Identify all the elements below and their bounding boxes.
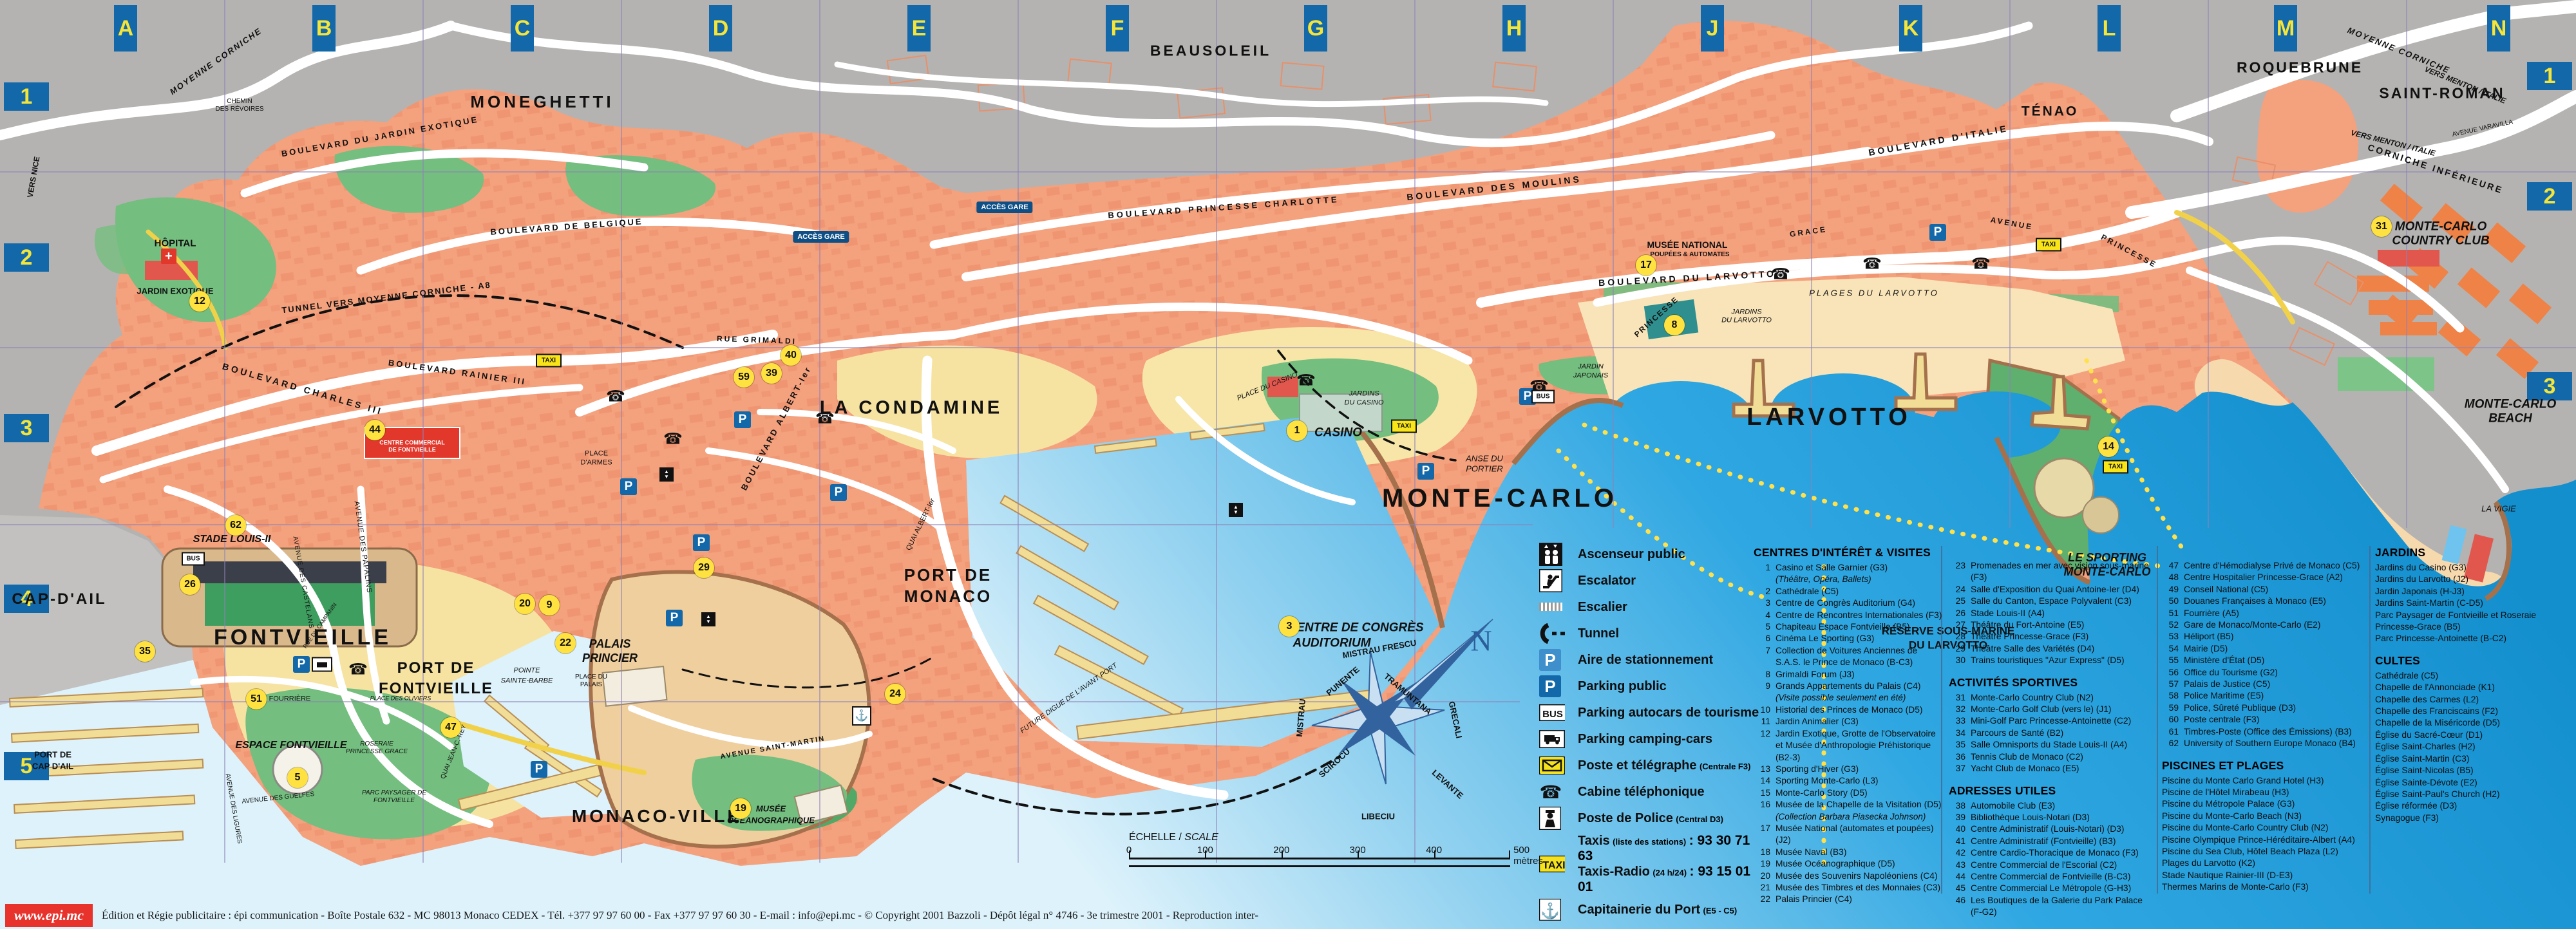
map-label: CHEMIN [227, 99, 252, 105]
poi-marker-1: 1 [1287, 420, 1307, 441]
compass-north-label: N [1470, 624, 1492, 658]
map-label: PRINCIER [582, 652, 638, 664]
grid-column-L: L [2098, 5, 2121, 52]
grid-column-M: M [2274, 5, 2297, 52]
poi-list-item: 30Trains touristiques "Azur Express" (D5… [1949, 655, 2152, 666]
poi-column-3: 47Centre d'Hémodialyse Privé de Monaco (… [2162, 546, 2360, 903]
poi-marker-5: 5 [287, 767, 308, 788]
legend-item: PAire de stationnement [1539, 648, 1766, 671]
map-label: PORT DE [34, 751, 71, 759]
poi-list-item: 40Centre Administratif (Louis-Notari) (D… [1949, 823, 2152, 835]
map-label: DES RÉVOIRES [215, 106, 263, 113]
grid-column-F: F [1106, 5, 1129, 52]
map-label: JAPONAIS [1573, 373, 1608, 380]
footer: www.epi.mc Édition et Régie publicitaire… [0, 901, 2576, 929]
poi-list-item: Chapelle des Carmes (L2) [2375, 694, 2568, 706]
grid-column-C: C [511, 5, 534, 52]
P-badge: P [531, 761, 547, 778]
legend-label: Escalier [1578, 599, 1627, 615]
poi-column-1: CENTRES D'INTÉRÊT & VISITES1Casino et Sa… [1754, 546, 1944, 915]
poi-list-item: 53Héliport (B5) [2162, 631, 2360, 643]
poi-list-item: 32Monte-Carlo Golf Club (vers le) (J1) [1949, 704, 2152, 715]
poi-list-item: 27Théâtre du Fort-Antoine (E5) [1949, 619, 2152, 631]
map-label: PORT DE [397, 661, 475, 676]
legend-label: Ascenseur public [1578, 547, 1685, 562]
poi-list-item: 6Cinéma Le Sporting (G3) [1754, 633, 1944, 644]
P-badge: P [666, 610, 683, 626]
poi-list-item: Cathédrale (C5) [2375, 670, 2568, 682]
map-label: SAINTE-BARBE [501, 678, 553, 685]
poi-marker-35: 35 [135, 641, 155, 662]
legend-label: Poste et télégraphe (Centrale F3) [1578, 758, 1750, 773]
poi-list-item: 49Conseil National (C5) [2162, 584, 2360, 596]
poi-list-subnote: (Visite possible seulement en été) [1776, 692, 1944, 704]
poi-marker-40: 40 [781, 345, 801, 366]
BUS-badge: BUS [182, 552, 205, 566]
camper-badge [312, 657, 332, 672]
map-label: MONTE-CARLO [2395, 221, 2486, 233]
poi-list-item: Chapelle de la Miséricorde (D5) [2375, 717, 2568, 729]
poi-marker-8: 8 [1664, 315, 1685, 335]
poi-list-item: 19Musée Océanographique (D5) [1754, 858, 1944, 870]
legend-item: Tunnel [1539, 622, 1766, 645]
phone-badge: ☎ [663, 430, 683, 449]
gare-badge: ACCÈS GARE [976, 202, 1032, 213]
poi-marker-3: 3 [1279, 616, 1300, 637]
map-label: LARVOTTO [1747, 405, 1911, 429]
gare-badge: ACCÈS GARE [793, 231, 849, 243]
poi-list-item: Église réformée (D3) [2375, 800, 2568, 812]
phone-badge: ☎ [815, 409, 835, 428]
P-badge: P [293, 656, 310, 673]
poi-list-item: 56Office du Tourisme (G2) [2162, 667, 2360, 679]
poi-list-item: 29Théâtre Salle des Variétés (D4) [1949, 643, 2152, 655]
poi-list-item: 50Douanes Françaises à Monaco (E5) [2162, 596, 2360, 607]
map-label: DE FONTVIEILLE [388, 447, 436, 453]
poi-list-item: Piscine du Métropole Palace (G3) [2162, 798, 2360, 810]
bus-icon: BUS [1539, 701, 1565, 724]
grid-column-G: G [1304, 5, 1327, 52]
anchor-badge: ⚓ [852, 706, 871, 726]
stairs-icon [1539, 596, 1565, 619]
section-header: CENTRES D'INTÉRÊT & VISITES [1754, 546, 1944, 559]
poi-list-item: 39Bibliothèque Louis-Notari (D3) [1949, 812, 2152, 823]
poi-list-item: Église Sainte-Dévote (E2) [2375, 777, 2568, 789]
lift-badge: ▲▼ [1229, 503, 1243, 517]
map-label: CENTRE COMMERCIAL [379, 440, 445, 446]
legend-item: Ascenseur public [1539, 543, 1766, 566]
poi-list-item: 55Ministère d'État (D5) [2162, 655, 2360, 666]
legend-item: PParking public [1539, 675, 1766, 698]
poi-list-item: Église Saint-Martin (C3) [2375, 753, 2568, 765]
phone-badge: ☎ [1862, 255, 1882, 274]
poi-list-item: Stade Nautique Rainier-III (D-E3) [2162, 870, 2360, 881]
map-label: BEAUSOLEIL [1150, 44, 1271, 59]
scale-tick-labels: 0100200300400500 mètres [1129, 845, 1515, 858]
legend-item: TAXITaxis (liste des stations) : 93 30 7… [1539, 833, 1766, 895]
poi-list-item: 16Musée de la Chapelle de la Visitation … [1754, 799, 1944, 811]
poi-list-item: 48Centre Hospitalier Princesse-Grace (A2… [2162, 572, 2360, 583]
grid-row-left-1: 1 [4, 82, 49, 111]
poi-list-item: 24Salle d'Exposition du Quai Antoine-Ier… [1949, 584, 2152, 596]
legend-item: Poste de Police (Central D3) [1539, 807, 1766, 830]
poi-list-item: Parc Paysager de Fontvieille et Roseraie… [2375, 610, 2568, 633]
map-label: PORTIER [1466, 465, 1503, 473]
legend-label: Aire de stationnement [1578, 652, 1713, 668]
poi-list-item: Église du Sacré-Cœur (D1) [2375, 729, 2568, 741]
poi-list-item: 12Jardin Exotique, Grotte de l'Observato… [1754, 728, 1944, 764]
poi-list-item: Jardins du Casino (G3) [2375, 562, 2568, 574]
map-label: CENTRE DE CONGRÈS [1287, 622, 1423, 634]
escalator-icon [1539, 569, 1565, 592]
poi-list-item: 41Centre Administratif (Fontvieille) (B3… [1949, 836, 2152, 847]
poi-list-item: Piscine du Monte-Carlo Beach (N3) [2162, 811, 2360, 822]
map-label: MONACO [904, 588, 992, 605]
poi-marker-62: 62 [225, 515, 246, 536]
poi-list-item: 54Mairie (D5) [2162, 643, 2360, 655]
svg-text:P: P [1544, 650, 1555, 670]
poi-marker-51: 51 [246, 689, 267, 709]
taxi-icon: TAXI [1539, 852, 1565, 876]
legend-label: Taxis (liste des stations) : 93 30 71 63 [1578, 833, 1766, 864]
svg-text:☎: ☎ [1540, 782, 1562, 802]
phone-icon: ☎ [1539, 780, 1565, 803]
grid-column-H: H [1502, 5, 1526, 52]
poi-list-item: Jardins du Larvotto (J2) [2375, 574, 2568, 585]
map-label: COUNTRY CLUB [2392, 235, 2489, 247]
scale-line [1129, 858, 1510, 867]
poi-marker-14: 14 [2098, 436, 2119, 457]
poi-marker-17: 17 [1636, 255, 1656, 276]
poi-list-item: 42Centre Cardio-Thoracique de Monaco (F3… [1949, 847, 2152, 859]
poi-marker-20: 20 [515, 594, 535, 614]
panel-divider [2369, 546, 2371, 894]
poi-list-subnote: (Théâtre, Opéra, Ballets) [1776, 574, 1944, 585]
map-label: PRINCESSE GRACE [346, 749, 408, 755]
map-label: POUPÉES & AUTOMATES [1650, 252, 1729, 258]
svg-text:BUS: BUS [1542, 709, 1563, 720]
grid-column-D: D [709, 5, 732, 52]
P-badge: P [693, 534, 710, 551]
poi-list-item: 1Casino et Salle Garnier (G3) [1754, 562, 1944, 574]
poi-list-subnote: (Collection Barbara Piasecka Johnson) [1776, 811, 1944, 823]
phone-badge: ☎ [606, 388, 625, 406]
scale-title-fr: ÉCHELLE / [1129, 832, 1182, 843]
poi-list-item: Jardin Japonais (H-J3) [2375, 586, 2568, 597]
map-label: JARDINS [1349, 391, 1379, 398]
poi-marker-26: 26 [180, 574, 200, 595]
panel-divider [2157, 546, 2158, 894]
legend-label: Escalator [1578, 573, 1636, 588]
map-label: BEACH [2488, 413, 2532, 425]
wind-label: LIBECIU [1361, 812, 1395, 821]
scale-bar: ÉCHELLE / SCALE 0100200300400500 mètres [1129, 832, 1515, 867]
poi-list-item: 2Cathédrale (C5) [1754, 586, 1944, 597]
map-label: JARDINS [1731, 309, 1761, 316]
poi-list-item: 45Centre Commercial Le Métropole (G-H3) [1949, 883, 2152, 894]
poi-marker-12: 12 [189, 291, 210, 312]
camper-icon [1539, 727, 1565, 751]
poi-list-item: 61Timbres-Poste (Office des Émissions) (… [2162, 726, 2360, 738]
poi-list-item: Piscine de l'Hôtel Mirabeau (H3) [2162, 787, 2360, 798]
poi-list-item: 58Police Maritime (E5) [2162, 690, 2360, 702]
poi-list-item: Église Saint-Nicolas (B5) [2375, 765, 2568, 776]
scale-title-en: SCALE [1184, 832, 1218, 843]
elevator-icon [1539, 543, 1565, 566]
poi-list-item: 18Musée Naval (B3) [1754, 847, 1944, 858]
grid-row-left-2: 2 [4, 243, 49, 272]
poi-list-item: Plages du Larvotto (K2) [2162, 858, 2360, 869]
map-label: HÔPITAL [155, 239, 196, 249]
map-label: DU LARVOTTO [1721, 317, 1772, 324]
map-label: FONTVIEILLE [379, 681, 493, 697]
map-label: CAP-D'AIL [12, 592, 106, 607]
poi-list-item: Chapelle de l'Annonciade (K1) [2375, 682, 2568, 693]
section-header: CULTES [2375, 654, 2568, 668]
legend-label: Parking autocars de tourisme [1578, 705, 1759, 720]
publisher-logo: www.epi.mc [5, 904, 93, 927]
TAXI-badge: TAXI [2036, 238, 2061, 252]
map-label: PALAIS [589, 638, 631, 650]
poi-list-item: Piscine Olympique Prince-Héréditaire-Alb… [2162, 834, 2360, 846]
grid-column-B: B [312, 5, 336, 52]
tunnel-icon [1539, 622, 1565, 645]
poi-marker-24: 24 [885, 684, 905, 704]
P-badge: P [620, 478, 637, 495]
map-label: LA CONDAMINE [820, 399, 1003, 418]
map-label: FOURRIÈRE [269, 696, 311, 703]
poi-list-item: 21Musée des Timbres et des Monnaies (C3) [1754, 882, 1944, 894]
map-label: CASINO [1314, 427, 1362, 439]
grid-row-right-1: 1 [2527, 62, 2572, 90]
svg-text:P: P [1544, 677, 1555, 696]
poi-list-item: 33Mini-Golf Parc Princesse-Antoinette (C… [1949, 715, 2152, 727]
phone-badge: ☎ [1296, 371, 1316, 390]
poi-list-item: 3Centre de Congrès Auditorium (G4) [1754, 597, 1944, 609]
section-header: ADRESSES UTILES [1949, 784, 2152, 798]
poi-list-item: 5Chapiteau Espace Fontvieille (B5) [1754, 621, 1944, 633]
map-label: PLACE [585, 451, 608, 458]
phone-badge: ☎ [1971, 255, 1991, 274]
P-badge: P [1417, 463, 1434, 480]
map-label: ROQUEBRUNE [2237, 61, 2363, 75]
legend-label: Parking camping-cars [1578, 731, 1712, 747]
poi-list-item: Thermes Marins de Monte-Carlo (F3) [2162, 881, 2360, 893]
poi-list-item: Chapelle des Franciscains (F2) [2375, 706, 2568, 717]
phone-badge: ☎ [348, 661, 368, 679]
legend-item: BUSParking autocars de tourisme [1539, 701, 1766, 724]
lift-badge: ▲▼ [701, 612, 715, 626]
poi-marker-31: 31 [2371, 216, 2392, 237]
map-label: PLAGES DU LARVOTTO [1809, 289, 1939, 297]
grid-column-J: J [1701, 5, 1724, 52]
poi-marker-22: 22 [555, 633, 576, 653]
monaco-map-page: ABCDEFGHJKLMN12345123 MONEGHETTIBEAUSOLE… [0, 0, 2576, 929]
poi-list-item: 11Jardin Animalier (C3) [1754, 716, 1944, 727]
poi-list-item: 52Gare de Monaco/Monte-Carlo (E2) [2162, 619, 2360, 631]
svg-text:TAXI: TAXI [1542, 860, 1565, 871]
poi-list-item: 10Historial des Princes de Monaco (D5) [1754, 704, 1944, 716]
poi-list-item: 9Grands Appartements du Palais (C4) [1754, 680, 1944, 692]
poi-list-item: 36Tennis Club de Monaco (C2) [1949, 751, 2152, 763]
poi-list-item: 57Palais de Justice (C5) [2162, 679, 2360, 690]
legend-item: Parking camping-cars [1539, 727, 1766, 751]
map-label: PLACE DU [575, 674, 607, 680]
map-label: MONEGHETTI [470, 93, 614, 110]
poi-marker-39: 39 [761, 363, 782, 384]
TAXI-badge: TAXI [2103, 460, 2128, 474]
poi-list-item: 23Promenades en mer avec vision sous-mar… [1949, 560, 2152, 584]
scale-tick-label: 500 mètres [1513, 845, 1543, 867]
legend-label: Poste de Police (Central D3) [1578, 811, 1723, 826]
poi-list-item: Piscine du Monte Carlo Grand Hotel (H3) [2162, 775, 2360, 787]
grid-column-E: E [907, 5, 931, 52]
map-label: LA VIGIE [2481, 505, 2516, 513]
map-label: PORT DE [904, 567, 992, 583]
poi-list-item: Église Saint-Charles (H2) [2375, 741, 2568, 753]
grid-column-K: K [1899, 5, 1922, 52]
poi-marker-47: 47 [440, 717, 461, 738]
P-badge: P [830, 484, 847, 501]
legend-label: Cabine téléphonique [1578, 784, 1705, 800]
poi-list-item: 20Musée des Souvenirs Napoléoniens (C4) [1754, 870, 1944, 882]
poi-list-item: 35Salle Omnisports du Stade Louis-II (A4… [1949, 739, 2152, 751]
poi-list-item: 13Sporting d'Hiver (G3) [1754, 764, 1944, 775]
poi-marker-9: 9 [539, 595, 560, 615]
section-header: PISCINES ET PLAGES [2162, 759, 2360, 773]
poi-list-item: 59Police, Sûreté Publique (D3) [2162, 702, 2360, 714]
map-label: JARDIN [1578, 364, 1604, 371]
map-label: ANSE DU [1466, 455, 1503, 463]
map-label: PALAIS [580, 682, 602, 688]
map-label: TÉNAO [2022, 105, 2079, 118]
grid-row-right-3: 3 [2527, 372, 2572, 400]
map-label: FONTVIEILLE [374, 798, 415, 804]
cross-badge: + [161, 249, 176, 264]
poi-list-item: 17Musée National (automates et poupées) … [1754, 823, 1944, 847]
map-label: MUSÉE [756, 805, 786, 813]
poi-marker-44: 44 [365, 420, 385, 440]
post-icon [1539, 754, 1565, 777]
poi-list-item: 37Yacht Club de Monaco (E5) [1949, 763, 2152, 774]
poi-list-item: 62University of Southern Europe Monaco (… [2162, 738, 2360, 749]
poi-list-item: 25Salle du Canton, Espace Polyvalent (C3… [1949, 596, 2152, 607]
grid-column-N: N [2487, 5, 2510, 52]
map-label: D'ARMES [580, 460, 612, 467]
poi-list-item: 34Parcours de Santé (B2) [1949, 727, 2152, 739]
map-label: ESPACE FONTVIEILLE [235, 740, 346, 751]
legend-label: Taxis-Radio (24 h/24) : 93 15 01 01 [1578, 864, 1766, 895]
poi-list-item: Piscine du Sea Club, Hôtel Beach Plaza (… [2162, 846, 2360, 858]
map-label: ROSERAIE [360, 741, 393, 747]
poi-list-item: 51Fourrière (A5) [2162, 608, 2360, 619]
footer-credits: Édition et Régie publicitaire : épi comm… [102, 909, 1258, 922]
police-icon [1539, 807, 1565, 830]
poi-column-4: JARDINSJardins du Casino (G3)Jardins du … [2375, 546, 2568, 833]
poi-marker-29: 29 [694, 558, 714, 578]
poi-list-item: 43Centre Commercial de l'Escorial (C2) [1949, 859, 2152, 871]
parking-icon: P [1539, 675, 1565, 698]
section-header: JARDINS [2375, 546, 2568, 559]
poi-list-item: 28Théâtre Princesse-Grace (F3) [1949, 631, 2152, 643]
poi-list-item: Église Saint-Paul's Church (H2) [2375, 789, 2568, 800]
poi-column-2: 23Promenades en mer avec vision sous-mar… [1949, 546, 2152, 928]
poi-marker-59: 59 [734, 367, 754, 388]
poi-list-item: 47Centre d'Hémodialyse Privé de Monaco (… [2162, 560, 2360, 572]
map-label: MUSÉE NATIONAL [1647, 240, 1728, 249]
poi-list-item: 60Poste centrale (F3) [2162, 714, 2360, 726]
grid-column-A: A [114, 5, 137, 52]
map-label: PLACE DES OLIVIERS [370, 696, 431, 702]
poi-list-item: 14Sporting Monte-Carlo (L3) [1754, 775, 1944, 787]
P-badge: P [1929, 224, 1946, 241]
map-label: STADE LOUIS-II [193, 534, 271, 545]
poi-list-item: 44Centre Commercial de Fontvieille (B-C3… [1949, 871, 2152, 883]
P-badge: P [734, 411, 751, 428]
map-label: CAP D'AIL [32, 762, 73, 771]
map-legend: Ascenseur public Escalator Escalier Tunn… [1539, 543, 1766, 929]
phone-badge: ☎ [1529, 377, 1549, 396]
poi-list-item: 15Monte-Carlo Story (D5) [1754, 787, 1944, 799]
parking-area-icon: P [1539, 648, 1565, 671]
legend-label: Parking public [1578, 679, 1667, 694]
legend-label: Tunnel [1578, 626, 1619, 641]
map-label: MONACO-VILLE [572, 807, 742, 825]
poi-list-item: 26Stade Louis-II (A4) [1949, 608, 2152, 619]
poi-list-item: Synagogue (F3) [2375, 812, 2568, 824]
legend-item: ☎Cabine téléphonique [1539, 780, 1766, 803]
map-label: DU CASINO [1344, 400, 1383, 407]
poi-list-item: 38Automobile Club (E3) [1949, 800, 2152, 812]
legend-item: Poste et télégraphe (Centrale F3) [1539, 754, 1766, 777]
grid-row-left-3: 3 [4, 414, 49, 442]
legend-item: Escalier [1539, 596, 1766, 619]
poi-list-item: 31Monte-Carlo Country Club (N2) [1949, 692, 2152, 704]
phone-badge: ☎ [1771, 265, 1790, 284]
section-header: ACTIVITÉS SPORTIVES [1949, 676, 2152, 690]
grid-row-right-2: 2 [2527, 182, 2572, 211]
map-label: PARC PAYSAGER DE [362, 790, 426, 796]
poi-list-item: Piscine du Monte-Carlo Country Club (N2) [2162, 822, 2360, 834]
poi-list-item: 8Grimaldi Forum (J3) [1754, 669, 1944, 680]
poi-list-item: Jardins Saint-Martin (C-D5) [2375, 597, 2568, 609]
poi-list-item: 7Collection de Voitures Anciennes de S.A… [1754, 645, 1944, 669]
TAXI-badge: TAXI [536, 354, 562, 368]
map-label: MONTE-CARLO [2465, 399, 2556, 411]
legend-item: Escalator [1539, 569, 1766, 592]
poi-list-item: Parc Princesse-Antoinette (B-C2) [2375, 633, 2568, 644]
TAXI-badge: TAXI [1391, 420, 1417, 433]
map-label: POINTE [514, 668, 540, 675]
map-label: MONTE-CARLO [1382, 485, 1618, 511]
poi-list-item: 4Centre de Rencontres Internationales (F… [1754, 610, 1944, 621]
poi-marker-19: 19 [730, 798, 751, 819]
lift-badge: ▲▼ [659, 467, 674, 482]
